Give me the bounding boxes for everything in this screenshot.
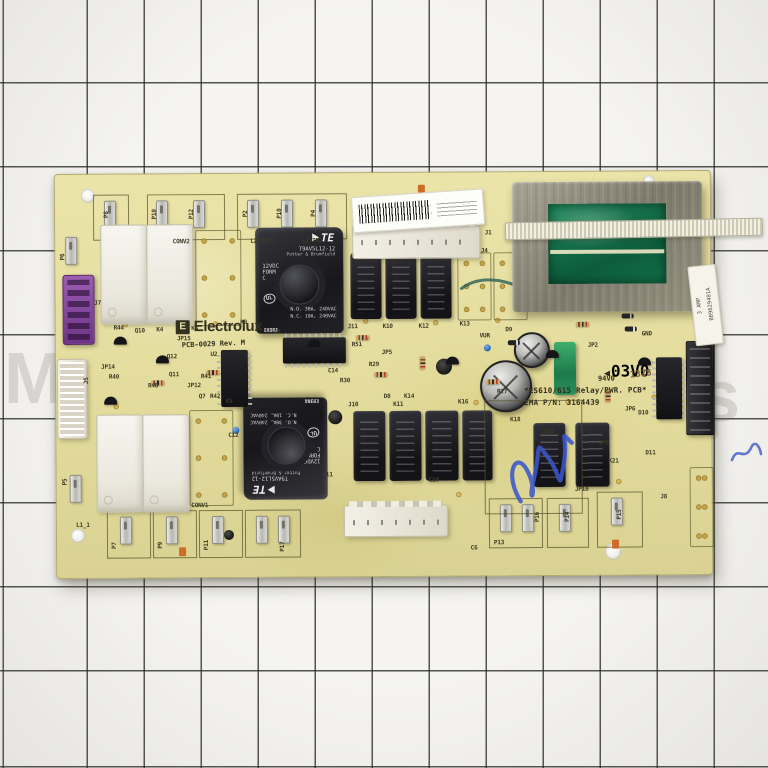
small-relay xyxy=(350,253,381,319)
silk-label: C10 xyxy=(429,478,439,484)
silk-label: P9 xyxy=(158,542,164,549)
silk-label: D9 xyxy=(505,327,512,333)
silk-label: C6 xyxy=(471,545,478,551)
relay-coil-dome xyxy=(273,258,325,310)
blue-handwriting xyxy=(494,410,579,507)
pcb-revision: PCB-0029 Rev. M xyxy=(182,339,245,350)
silk-label: P13 xyxy=(494,540,504,546)
small-relay xyxy=(425,411,458,481)
silk-label: Q12 xyxy=(167,354,177,360)
small-relay xyxy=(353,411,385,481)
quick-connect-terminal xyxy=(65,237,77,265)
relay-maker: Potter & Brumfield xyxy=(286,253,335,258)
dip-ic xyxy=(656,357,682,419)
black-header-connector xyxy=(686,341,715,435)
diode xyxy=(508,340,520,345)
silk-label: JP5 xyxy=(382,350,392,356)
silk-label: K5 xyxy=(226,399,233,405)
mounting-hole xyxy=(71,529,85,543)
silk-label: C11 xyxy=(322,472,332,478)
silk-label: R29 xyxy=(369,362,379,368)
transistor xyxy=(114,337,127,345)
white-connector-bottom xyxy=(344,505,448,538)
transistor xyxy=(104,397,117,405)
silk-label: P5 xyxy=(63,479,69,486)
transistor xyxy=(308,339,321,347)
silk-label: J4 xyxy=(481,248,488,254)
resistor xyxy=(420,356,425,370)
silk-label: P16 xyxy=(535,512,541,522)
silk-label: JP12 xyxy=(187,383,201,389)
silk-label: L1_1 xyxy=(76,523,90,529)
silk-label: K21 xyxy=(608,459,618,465)
silk-label: U2 xyxy=(210,352,217,358)
ul-mark: UL xyxy=(307,427,320,439)
silk-label: K12 xyxy=(419,324,429,330)
small-relay xyxy=(385,253,416,319)
cable-tie xyxy=(505,218,763,240)
white-relay-module xyxy=(96,414,144,512)
silk-label: C12 xyxy=(228,433,238,439)
silk-label: R30 xyxy=(340,378,350,384)
flammability-rating: 94V0 xyxy=(598,375,615,383)
product-photo: M s xyxy=(0,0,768,768)
silk-label: K18 xyxy=(510,417,520,423)
purple-connector xyxy=(62,275,94,345)
silk-label: R51 xyxy=(352,342,362,348)
te-logo: TE xyxy=(253,483,275,495)
blue-bead-component xyxy=(484,344,491,351)
orange-component xyxy=(612,540,619,549)
white-relay-module xyxy=(100,224,148,324)
empty-relay-footprint xyxy=(195,230,242,326)
relay-rating-nc: N.C. 10A, 240VAC xyxy=(290,314,336,320)
silk-label: R48 xyxy=(148,383,158,389)
silk-label: K4 xyxy=(156,327,163,333)
silk-label: R44 xyxy=(114,326,124,332)
barcode-icon xyxy=(358,200,431,224)
transformer xyxy=(512,181,703,312)
transistor xyxy=(446,357,459,365)
silk-label: CONV1 xyxy=(191,503,208,509)
silk-label: K10 xyxy=(383,324,393,330)
silk-label: J10 xyxy=(348,402,358,408)
resistor xyxy=(374,372,388,377)
silk-label: CONV2 xyxy=(173,239,190,245)
relay-rating-no: N.O. 30A, 240VAC xyxy=(290,307,336,313)
silk-label: JP2 xyxy=(588,343,598,349)
silk-label: J8 xyxy=(660,494,667,500)
blue-pen-mark xyxy=(728,438,764,468)
sticker-fine-print xyxy=(436,199,477,217)
silk-label: P12 xyxy=(189,209,195,219)
transformer-label: 3 AMP BB9629401A xyxy=(687,264,724,347)
silk-label: L2 OUT2 xyxy=(250,239,274,245)
power-relay-bottom: TE T9AV5L12-12 Potter & Brumfield 12VDC … xyxy=(243,397,328,500)
relay-rating-nc: N.C. 10A, 240VAC xyxy=(250,412,296,418)
silk-label: P2 xyxy=(243,210,249,217)
silk-label: L2 IN2 xyxy=(302,238,323,244)
diode xyxy=(622,313,634,318)
relay-country: CHINA xyxy=(305,397,319,402)
silk-label: P11 xyxy=(204,540,210,550)
transformer-winding xyxy=(548,203,666,284)
silk-label: P8 xyxy=(104,211,110,218)
silk-label: J7 xyxy=(94,301,101,307)
small-relay xyxy=(389,411,421,481)
quick-connect-terminal xyxy=(212,516,224,544)
silk-label: JP6 xyxy=(625,406,635,412)
silk-label: D8 xyxy=(384,394,391,400)
board-title: *ES610/615 Relay/PWR. PCB* xyxy=(524,385,647,395)
silk-label: R42 xyxy=(210,394,220,400)
quick-connect-terminal xyxy=(70,475,82,503)
board-hole xyxy=(328,410,342,424)
silk-label: J11 xyxy=(348,324,358,330)
white-connector-j5 xyxy=(57,359,87,439)
empty-relay-footprint xyxy=(189,410,234,506)
silk-label: K6 xyxy=(191,326,198,332)
ul-mark: UL xyxy=(263,293,276,305)
resistor xyxy=(486,379,500,384)
silk-label: P4 xyxy=(311,210,317,217)
silk-label: D11 xyxy=(645,450,655,456)
silk-label: K9 xyxy=(240,320,247,326)
silk-label: Q10 xyxy=(135,328,145,334)
silk-label: J1 xyxy=(485,230,492,236)
green-marker-line xyxy=(459,272,519,296)
silk-label: P7 xyxy=(112,542,118,549)
silk-label: JP9 xyxy=(598,441,608,447)
silk-label: Q7 xyxy=(199,394,206,400)
relay-rating-no: N.O. 30A, 240VAC xyxy=(250,419,296,425)
quick-connect-terminal xyxy=(256,516,268,544)
silk-label: R41 xyxy=(201,374,211,380)
quick-connect-terminal xyxy=(120,517,132,545)
silk-label: P10 xyxy=(152,209,158,219)
silk-label: JP15 xyxy=(177,336,191,342)
silk-label: D10 xyxy=(638,410,648,416)
electrolux-logo-icon: E xyxy=(176,320,190,334)
electrolytic-capacitor xyxy=(514,332,550,368)
silk-label: K14 xyxy=(404,394,414,400)
quick-connect-terminal xyxy=(166,516,178,544)
silk-label: P17 xyxy=(280,541,286,551)
orange-component xyxy=(179,547,186,556)
silk-label: P14 xyxy=(565,512,571,522)
silk-label: P10 xyxy=(277,208,283,218)
quick-connect-terminal xyxy=(278,516,290,544)
silk-label: K20 xyxy=(544,429,554,435)
silk-label: K13 xyxy=(460,321,470,327)
transistor xyxy=(546,350,559,358)
silk-label: P15 xyxy=(617,509,623,519)
relay-coil-dome xyxy=(261,420,311,470)
silk-label: R40 xyxy=(109,375,119,381)
silk-label: GND xyxy=(642,331,652,337)
connector-footprint xyxy=(690,467,714,547)
silk-label: VUR xyxy=(480,333,490,339)
resistor xyxy=(356,335,370,340)
silk-label: K16 xyxy=(458,399,468,405)
silk-label: J5 xyxy=(84,377,90,384)
electrolux-wordmark: Electrolux xyxy=(194,318,263,335)
silk-label: JP10 xyxy=(575,487,589,493)
silkscreen-layer: P8P10P12CONV2P2P10P4L2 OUT2L2 IN2J1J4P6J… xyxy=(55,171,710,175)
silk-label: R27 xyxy=(497,389,507,395)
diode xyxy=(625,326,637,331)
transformer-code: BB9629401A xyxy=(705,287,717,321)
silk-label: JP14 xyxy=(101,365,115,371)
silk-label: K11 xyxy=(393,402,403,408)
silk-label: C14 xyxy=(328,368,338,374)
silk-label: Q11 xyxy=(169,372,179,378)
resistor xyxy=(576,322,590,327)
terminal-group-outline xyxy=(245,510,301,558)
transformer-amp-rating: 3 AMP xyxy=(695,297,706,314)
silk-label: P6 xyxy=(60,254,66,261)
relay-model: T9AV5L12-12 xyxy=(252,475,288,481)
electrolux-logo: E Electrolux xyxy=(176,318,263,336)
silk-label: U1 xyxy=(274,330,281,336)
white-relay-module xyxy=(142,414,190,512)
small-relay xyxy=(420,253,451,319)
